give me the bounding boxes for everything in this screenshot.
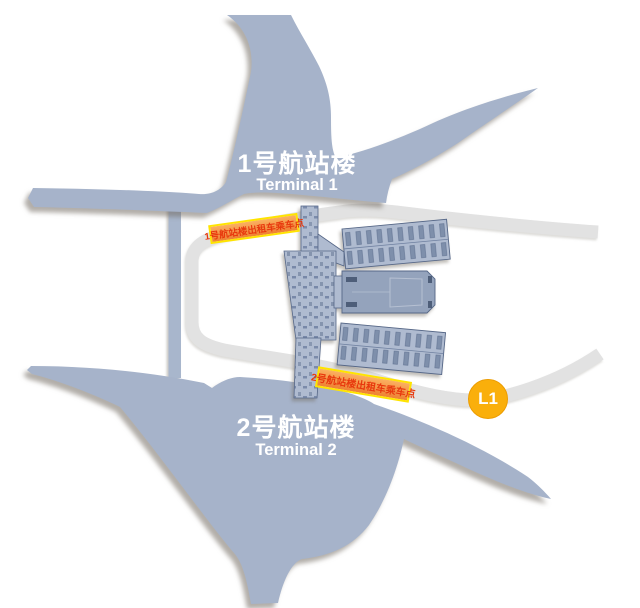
middle-pier <box>342 271 435 313</box>
terminal-1-title-en: Terminal 1 <box>177 177 417 194</box>
north-pier <box>342 219 450 269</box>
terminal-2-title-zh: 2号航站楼 <box>176 415 416 441</box>
south-pier <box>337 323 445 375</box>
airport-terminal-map: 1号航站楼 Terminal 1 2号航站楼 Terminal 2 1号航站楼出… <box>0 0 640 608</box>
level-l1-badge[interactable]: L1 <box>468 379 508 419</box>
connector-road <box>169 204 182 378</box>
map-canvas <box>0 0 640 608</box>
terminal-2-title-en: Terminal 2 <box>176 442 416 459</box>
terminal-1-title-zh: 1号航站楼 <box>177 151 417 177</box>
terminal-building-plan <box>284 206 450 398</box>
